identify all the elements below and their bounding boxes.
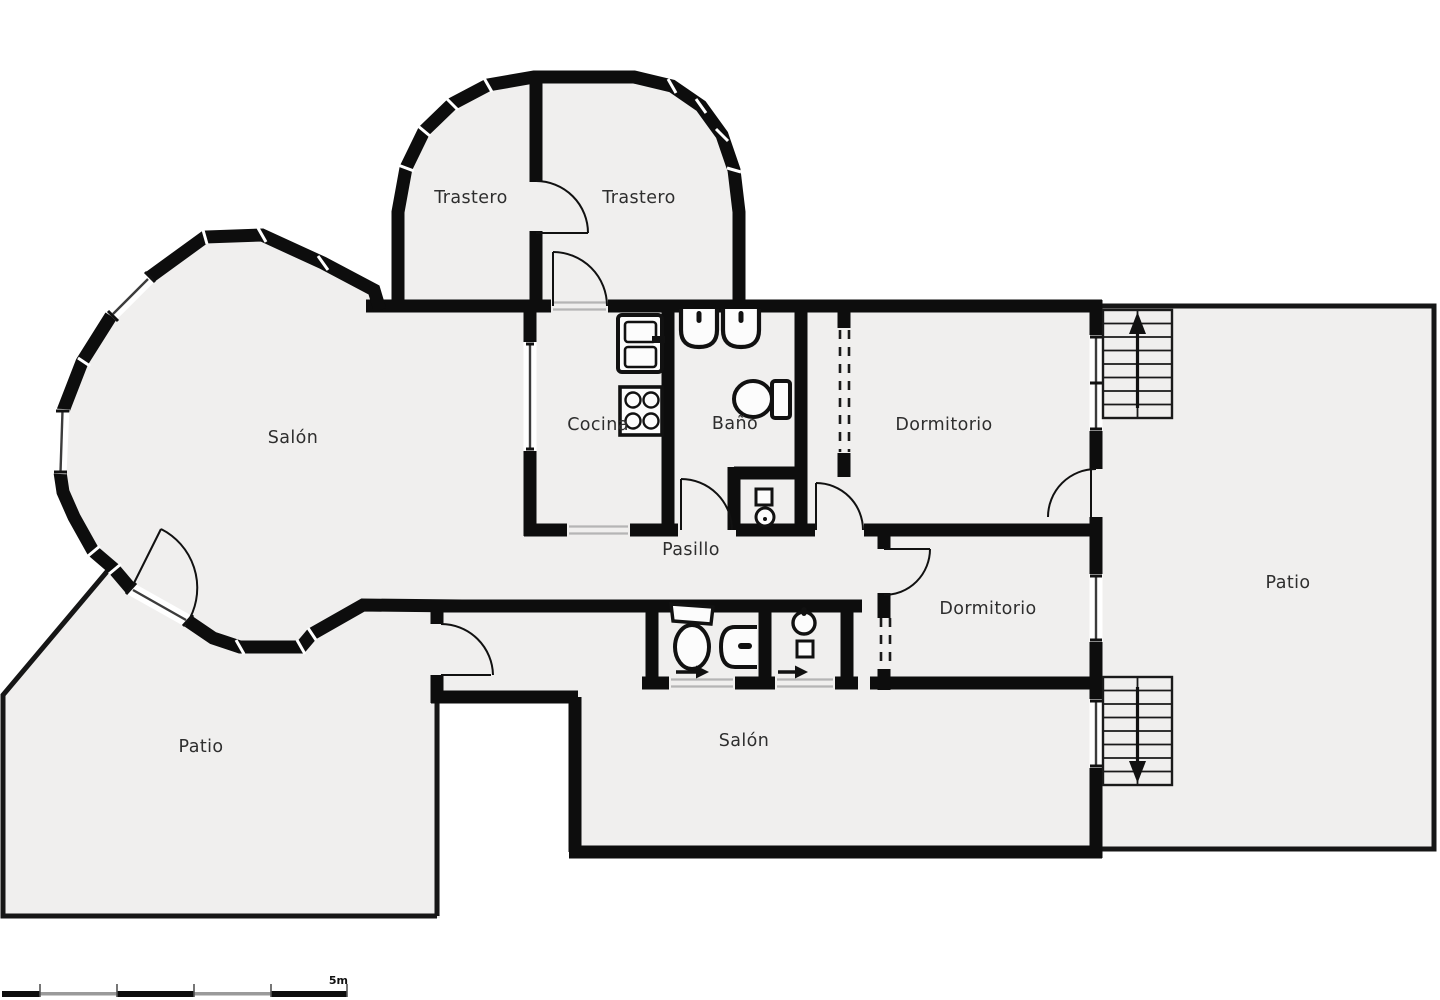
scale-bar-label: 5m [329,974,348,987]
room-label-salon-left: Salón [268,428,319,448]
washbasin-icon [681,309,717,347]
cocina-threshold [567,527,630,534]
room-label-salon-bottom: Salón [719,731,770,751]
window-icon [1090,335,1102,431]
room-label-patio-right: Patio [1266,573,1311,593]
scale-bar: 5m [2,974,348,997]
trastero-threshold [551,303,608,310]
room-label-pasillo: Pasillo [662,540,720,560]
small-bath2-threshold [775,680,835,687]
window-icon [526,342,534,451]
fridge-icon [618,315,665,372]
room-label-trastero-right: Trastero [601,188,676,208]
window-icon [1090,574,1102,642]
washbasin-icon [723,309,759,347]
floor-areas [2,77,1436,918]
toilet-icon [734,381,790,418]
washbasin-icon [721,627,757,667]
salon-bottom-step-walls [431,697,578,852]
room-label-bano: Baño [712,414,758,434]
window-icon [54,409,69,474]
floor-plan-drawing: Trastero Trastero Salón Cocina Baño Dorm… [0,0,1440,1000]
room-label-dormitorio-2: Dormitorio [939,599,1036,619]
room-label-patio-left: Patio [179,737,224,757]
room-label-cocina: Cocina [567,415,629,435]
floor-plan-page: Trastero Trastero Salón Cocina Baño Dorm… [0,0,1440,1000]
window-icon [1090,699,1102,768]
small-bath1-threshold [669,680,735,687]
bidet-icon [797,641,813,657]
room-label-dormitorio-1: Dormitorio [895,415,992,435]
toilet-icon [671,604,713,669]
room-label-trastero-left: Trastero [433,188,508,208]
